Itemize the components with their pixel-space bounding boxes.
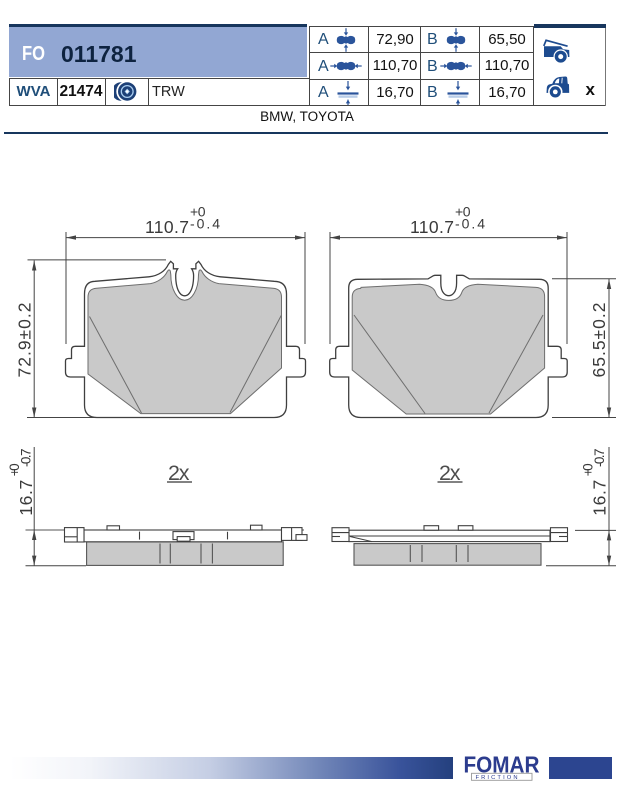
svg-text:-0.7: -0.7 [19, 449, 34, 468]
svg-text:110.7: 110.7 [410, 217, 454, 237]
svg-text:FRICTION: FRICTION [476, 775, 520, 781]
svg-text:65.5±0.2: 65.5±0.2 [589, 303, 609, 378]
svg-text:72.9±0.2: 72.9±0.2 [15, 303, 35, 378]
svg-text:-0.7: -0.7 [592, 449, 607, 468]
svg-text:16.7: 16.7 [16, 480, 36, 516]
svg-text:16.7: 16.7 [590, 480, 610, 516]
svg-text:110.7: 110.7 [145, 217, 189, 237]
